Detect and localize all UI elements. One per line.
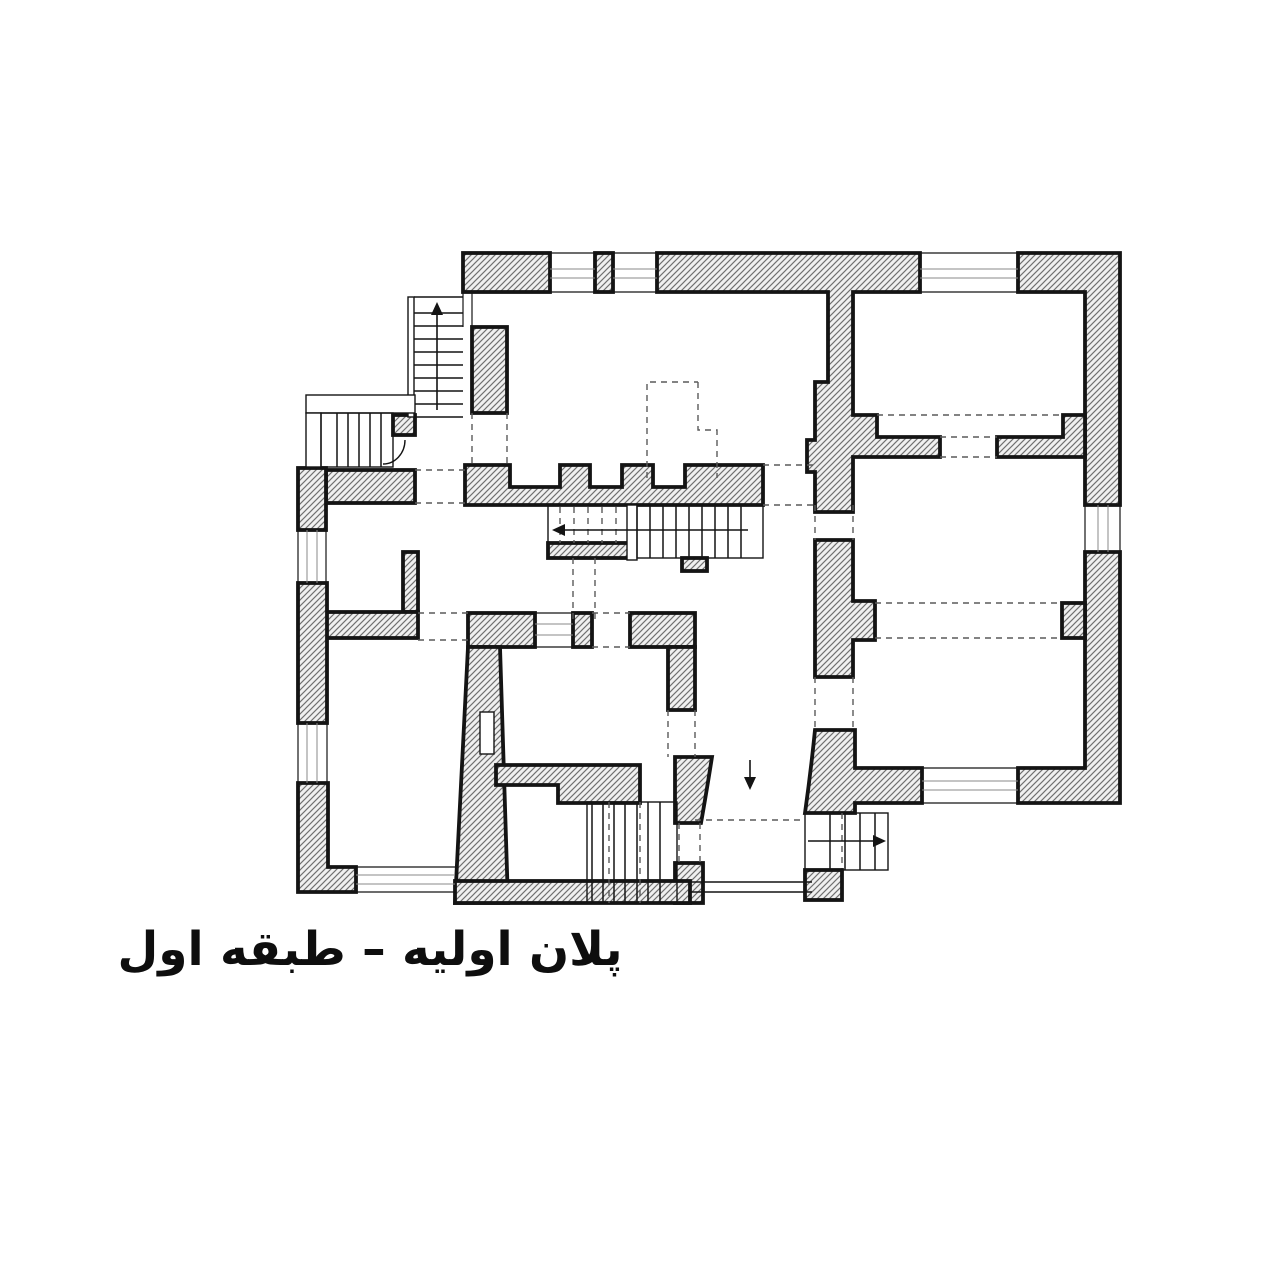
window-west-2 <box>298 723 327 783</box>
wall-stair-stringer <box>548 543 632 558</box>
wall-top-west <box>463 253 550 292</box>
door-band-west2 <box>418 613 468 640</box>
door-inner-foot <box>679 823 700 863</box>
wall-inner-top-east <box>630 613 695 647</box>
window-south-east <box>922 768 1018 803</box>
door-divider-ne <box>940 437 997 457</box>
up-arrow-icon <box>431 302 443 315</box>
corridor-arrow <box>744 760 756 790</box>
window-inner-room <box>535 613 573 647</box>
wall-stub-east <box>1062 603 1085 638</box>
plan-caption: پلان اولیه – طبقه اول <box>90 922 650 977</box>
divider-e-middle <box>875 603 1062 638</box>
wall-inner-east-curved <box>675 757 712 823</box>
wall-band-west2 <box>326 612 418 638</box>
down-arrow-icon <box>744 777 756 790</box>
window-pier-northwest <box>463 292 472 327</box>
stair-hall-center-west <box>548 505 632 543</box>
wall-inner-east <box>668 647 695 710</box>
door-inner-east <box>668 710 695 757</box>
stair-landing <box>306 395 415 413</box>
stairs <box>306 297 888 903</box>
door-below-pier <box>472 413 507 463</box>
wall-stair-block <box>682 558 707 571</box>
right-arrow-icon <box>873 835 886 847</box>
wall-top-east-corner <box>1018 253 1120 505</box>
wall-blockette-entry <box>393 415 415 435</box>
wall-stair-foot <box>805 870 842 900</box>
corridor-threshold <box>690 882 812 892</box>
wall-band-center <box>465 465 763 505</box>
wall-spine-middle <box>815 540 875 677</box>
stair-divider <box>627 505 637 560</box>
wall-west-3-corner <box>298 783 356 892</box>
stair-exterior-north-west <box>408 297 463 417</box>
windows <box>298 253 1120 892</box>
floor-plan-drawing <box>0 0 1280 1280</box>
left-arrow-icon <box>552 524 565 536</box>
window-west-1 <box>298 530 326 583</box>
wall-inner-top-pier <box>573 613 592 647</box>
wall-inner-bottom <box>496 765 640 803</box>
window-top-2 <box>613 253 657 292</box>
wall-divider-northeast <box>997 415 1085 457</box>
wall-band-west <box>326 470 415 503</box>
window-top-1 <box>550 253 595 292</box>
page-canvas: پلان اولیه – طبقه اول <box>0 0 1280 1280</box>
wall-south-band <box>455 881 690 903</box>
wall-west-2 <box>298 583 327 723</box>
window-south-west <box>356 867 455 892</box>
wall-east-lower <box>1018 552 1120 803</box>
stair-side-wall <box>306 413 321 467</box>
wall-segments <box>298 253 1120 903</box>
door-inner-top <box>592 613 630 647</box>
wall-spine-south <box>805 730 922 813</box>
wall-top-pier <box>595 253 613 292</box>
wall-post-west <box>403 552 418 612</box>
door-swing-arc <box>383 440 405 464</box>
wall-west-1 <box>298 468 326 530</box>
stair-south-east <box>805 813 888 900</box>
window-top-3 <box>920 253 1018 292</box>
window-east <box>1085 505 1120 552</box>
wall-inner-top-west <box>468 613 535 647</box>
door-band-west <box>415 470 468 503</box>
door-recess-inner-west <box>480 712 494 754</box>
door-spine-2 <box>815 677 853 730</box>
wall-pier-northwest <box>472 327 507 413</box>
